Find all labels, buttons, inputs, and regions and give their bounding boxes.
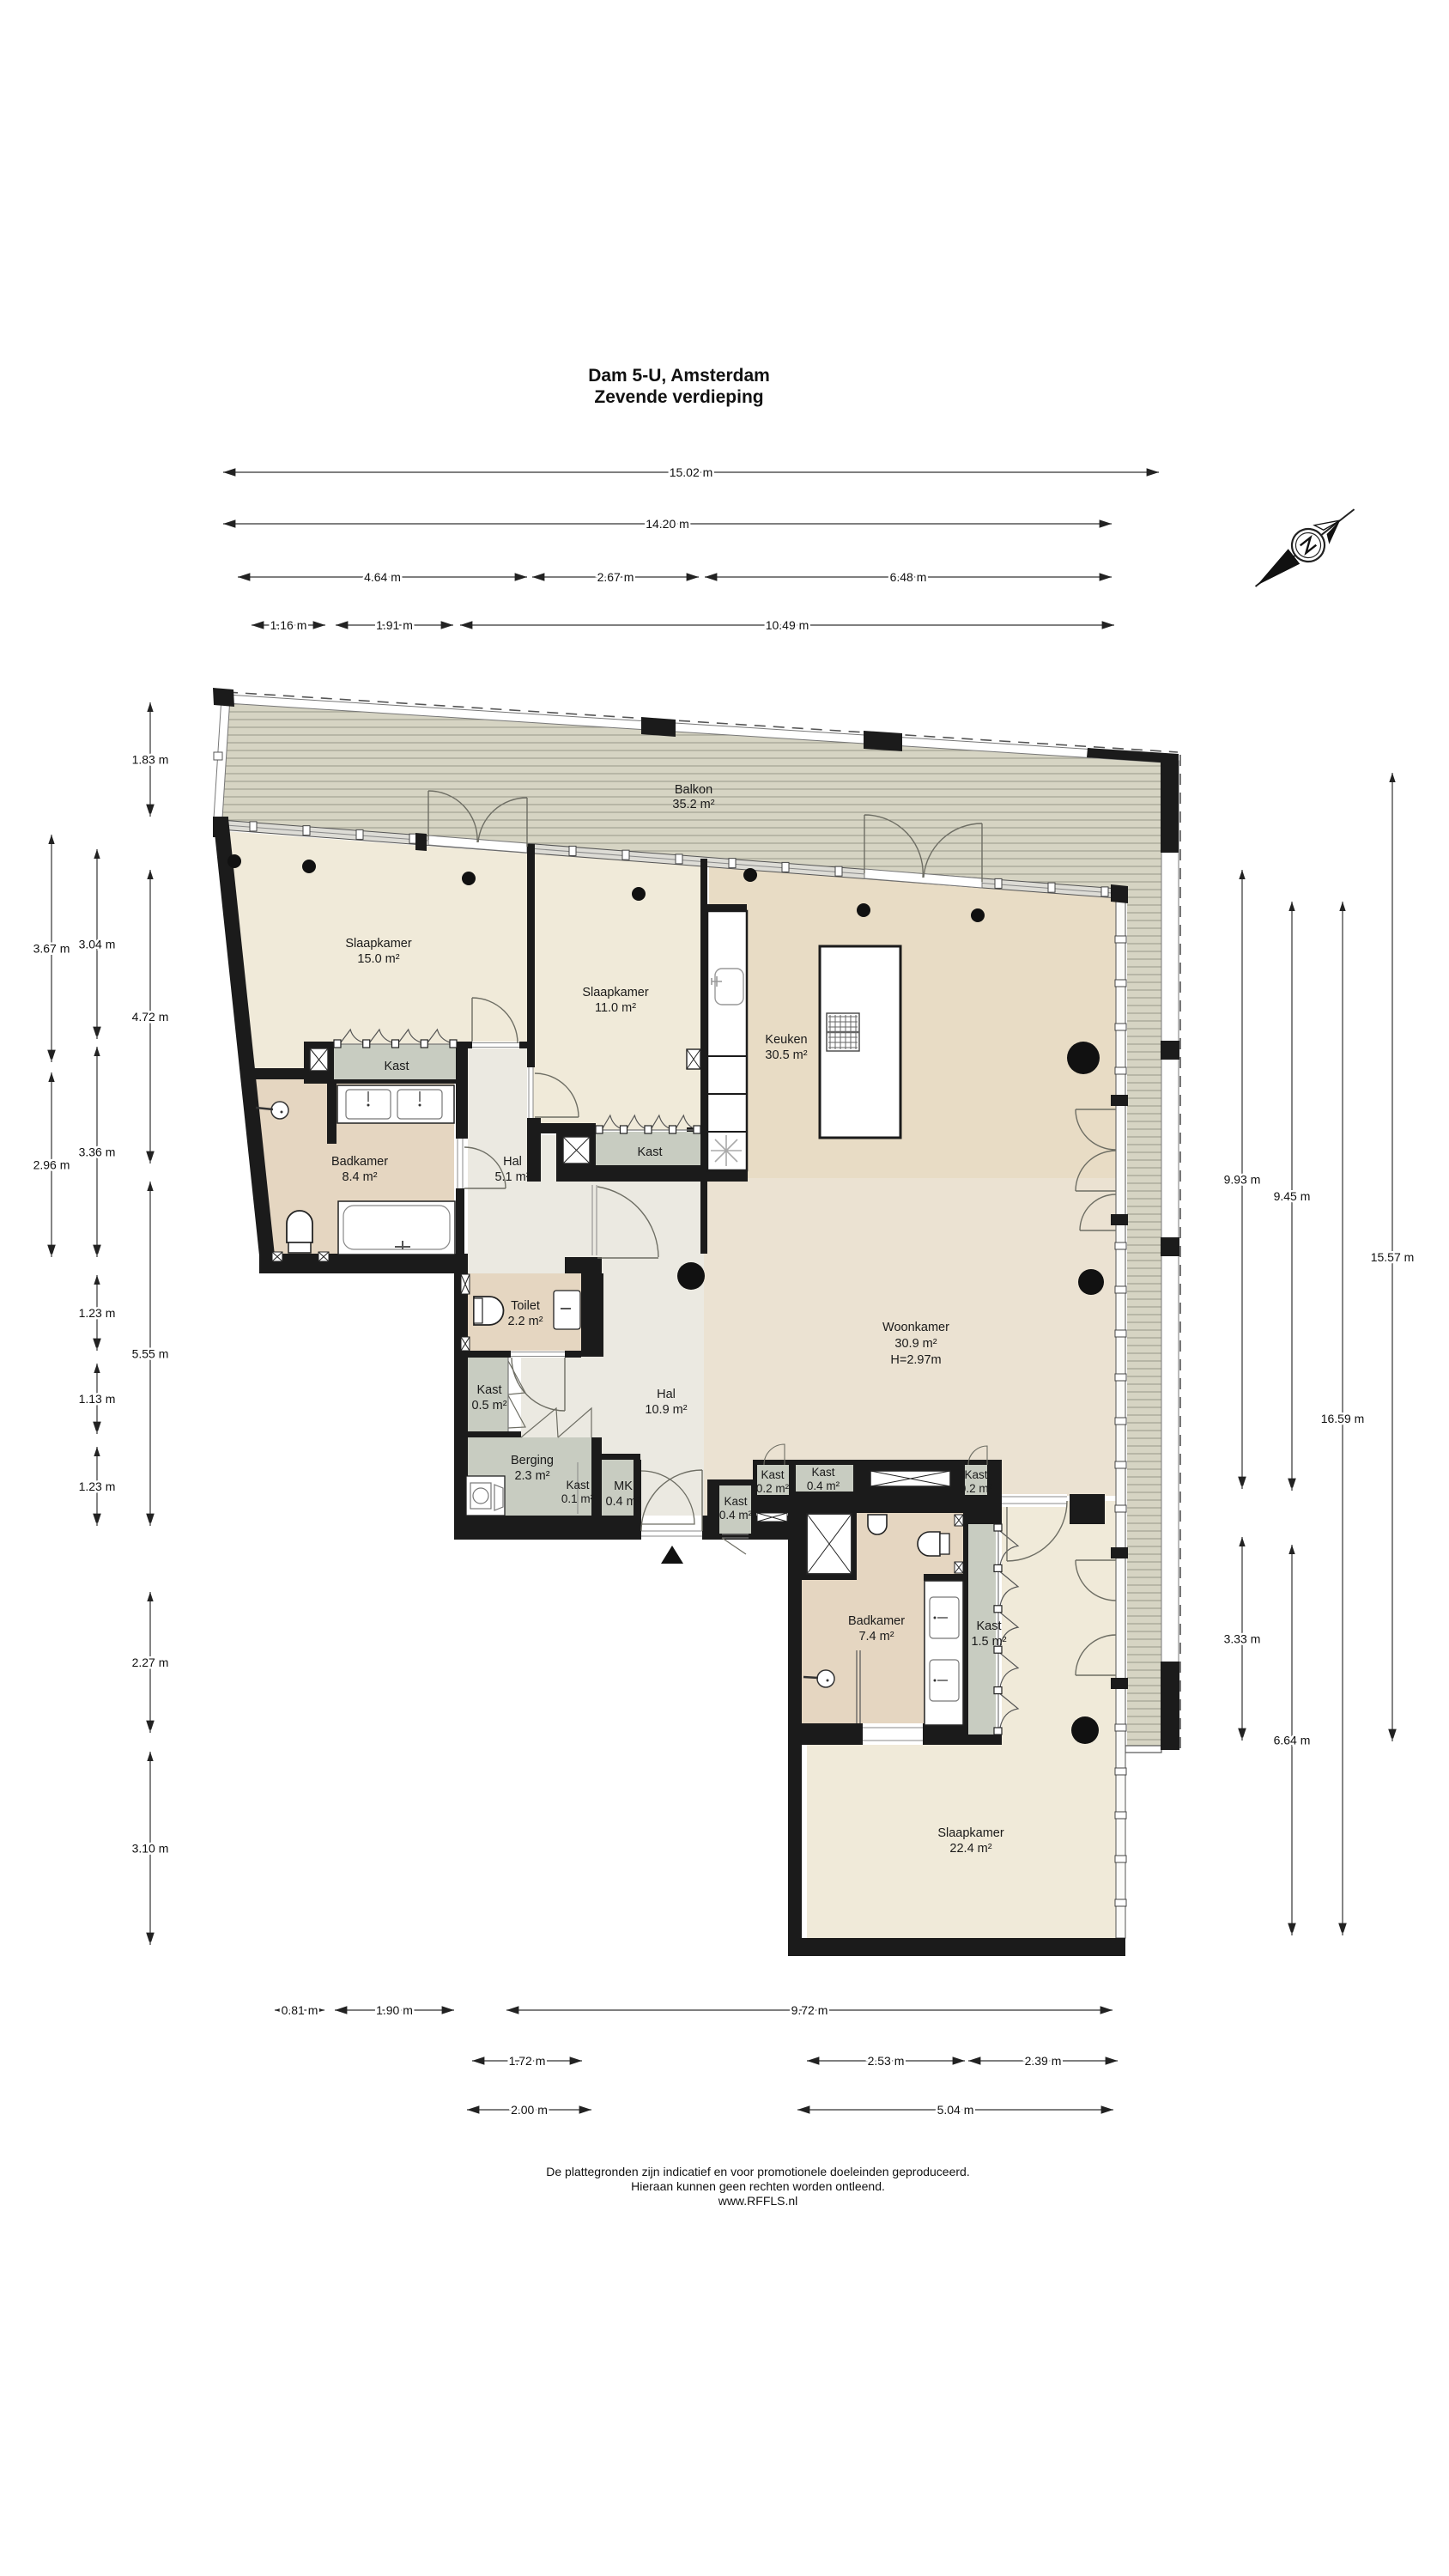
svg-text:1.16 m: 1.16 m xyxy=(270,618,307,632)
svg-text:Kast: Kast xyxy=(384,1060,409,1073)
svg-text:4.72 m: 4.72 m xyxy=(132,1010,169,1024)
svg-text:2.27 m: 2.27 m xyxy=(132,1656,169,1669)
svg-text:3.36 m: 3.36 m xyxy=(79,1145,116,1159)
svg-text:1.91 m: 1.91 m xyxy=(376,618,413,632)
svg-text:9.45 m: 9.45 m xyxy=(1274,1189,1311,1203)
svg-text:1.23 m: 1.23 m xyxy=(79,1306,116,1320)
svg-text:1.90 m: 1.90 m xyxy=(376,2003,413,2017)
svg-text:5.55 m: 5.55 m xyxy=(132,1347,169,1361)
svg-text:5.04 m: 5.04 m xyxy=(937,2103,974,2117)
svg-text:1.23 m: 1.23 m xyxy=(79,1479,116,1493)
svg-text:1.13 m: 1.13 m xyxy=(79,1392,116,1406)
svg-text:www.RFFLS.nl: www.RFFLS.nl xyxy=(718,2194,798,2208)
svg-text:14.20 m: 14.20 m xyxy=(646,517,689,531)
svg-text:15.02 m: 15.02 m xyxy=(670,465,713,479)
svg-text:Kast: Kast xyxy=(637,1145,662,1159)
svg-text:3.33 m: 3.33 m xyxy=(1224,1632,1261,1646)
svg-text:2.00 m: 2.00 m xyxy=(511,2103,548,2117)
svg-text:2.53 m: 2.53 m xyxy=(868,2054,905,2068)
svg-text:3.67 m: 3.67 m xyxy=(33,942,70,956)
svg-text:3.04 m: 3.04 m xyxy=(79,938,116,951)
svg-text:2.96 m: 2.96 m xyxy=(33,1158,70,1172)
svg-text:16.59 m: 16.59 m xyxy=(1321,1412,1365,1425)
svg-text:2.39 m: 2.39 m xyxy=(1025,2054,1062,2068)
svg-text:9.93 m: 9.93 m xyxy=(1224,1173,1261,1187)
svg-text:4.64 m: 4.64 m xyxy=(364,570,401,584)
svg-text:10.49 m: 10.49 m xyxy=(766,618,809,632)
svg-text:6.64 m: 6.64 m xyxy=(1274,1734,1311,1747)
svg-text:De plattegronden zijn indicati: De plattegronden zijn indicatief en voor… xyxy=(546,2165,969,2178)
svg-text:Balkon35.2 m²: Balkon35.2 m² xyxy=(672,783,714,811)
svg-text:2.67 m: 2.67 m xyxy=(597,570,634,584)
svg-text:Zevende verdieping: Zevende verdieping xyxy=(594,387,763,407)
svg-text:1.83 m: 1.83 m xyxy=(132,753,169,767)
svg-text:Hieraan kunnen geen rechten wo: Hieraan kunnen geen rechten worden ontle… xyxy=(631,2179,885,2193)
svg-text:6.48 m: 6.48 m xyxy=(890,570,927,584)
svg-text:1.72 m: 1.72 m xyxy=(509,2054,546,2068)
svg-text:9.72 m: 9.72 m xyxy=(791,2003,828,2017)
svg-text:3.10 m: 3.10 m xyxy=(132,1842,169,1856)
svg-text:0.81 m: 0.81 m xyxy=(282,2003,318,2017)
svg-text:15.57 m: 15.57 m xyxy=(1371,1250,1415,1264)
svg-text:Dam 5-U, Amsterdam: Dam 5-U, Amsterdam xyxy=(588,366,770,386)
